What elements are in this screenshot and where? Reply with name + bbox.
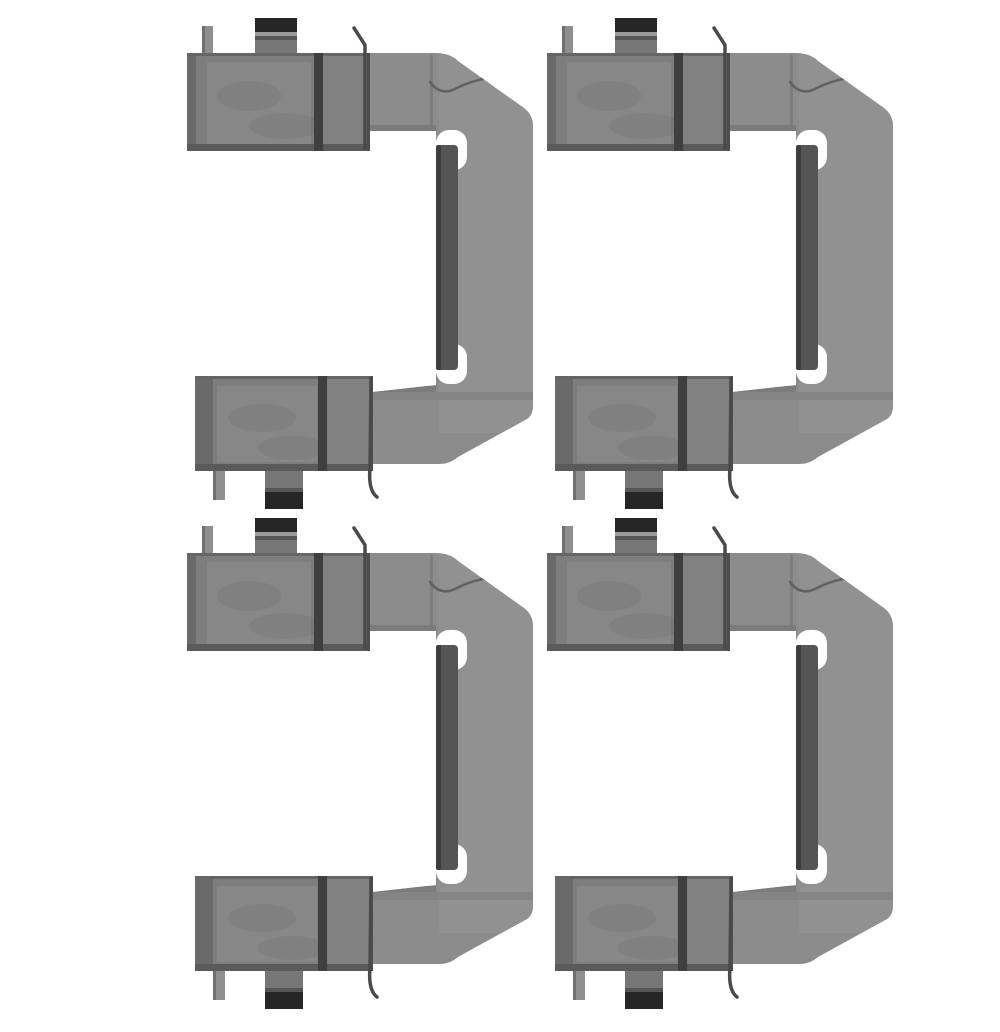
fitting-kit-photo-canvas [40, 16, 1000, 1016]
clip-top-right [547, 18, 897, 509]
clip-bottom-left [187, 518, 537, 1009]
clips-grid [187, 18, 897, 1009]
product-photo [40, 16, 1000, 1016]
clip-bottom-right [547, 518, 897, 1009]
clip-top-left [187, 18, 537, 509]
